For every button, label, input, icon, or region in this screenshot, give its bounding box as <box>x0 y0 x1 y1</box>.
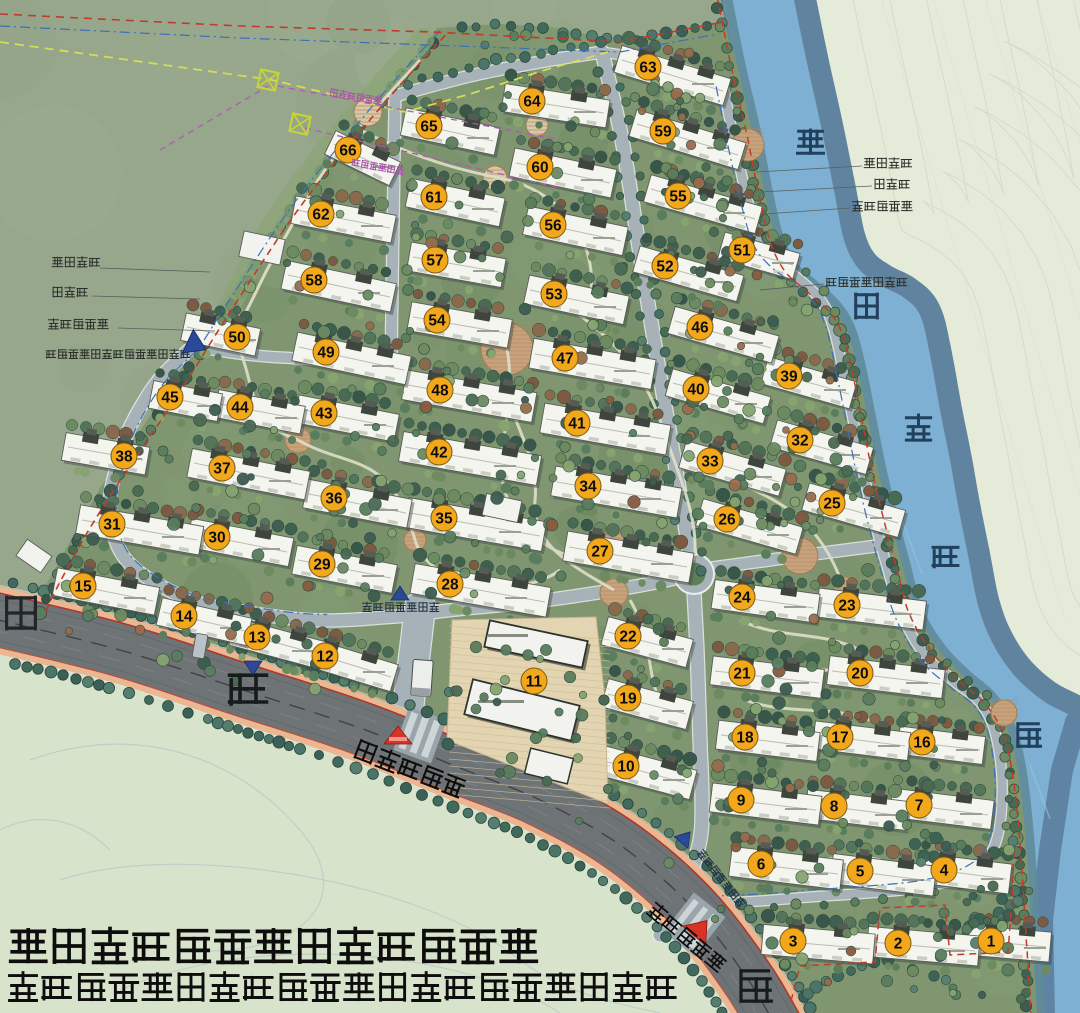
svg-text:19: 19 <box>619 691 637 708</box>
svg-text:21: 21 <box>733 666 751 683</box>
svg-text:38: 38 <box>115 449 133 466</box>
svg-text:34: 34 <box>579 479 597 496</box>
svg-text:63: 63 <box>639 60 657 77</box>
svg-text:2: 2 <box>894 936 903 953</box>
svg-text:48: 48 <box>431 383 449 400</box>
svg-text:40: 40 <box>687 382 704 399</box>
svg-text:16: 16 <box>913 735 931 752</box>
svg-text:64: 64 <box>523 94 541 111</box>
svg-text:29: 29 <box>313 557 331 574</box>
svg-text:42: 42 <box>430 445 447 462</box>
svg-text:17: 17 <box>831 730 848 747</box>
svg-text:7: 7 <box>915 798 924 815</box>
svg-text:43: 43 <box>315 406 333 423</box>
svg-text:59: 59 <box>654 124 672 141</box>
svg-text:56: 56 <box>544 218 562 235</box>
svg-text:6: 6 <box>757 857 766 874</box>
svg-text:18: 18 <box>736 730 754 747</box>
svg-text:28: 28 <box>441 577 459 594</box>
svg-text:24: 24 <box>733 590 751 607</box>
svg-text:47: 47 <box>556 351 573 368</box>
svg-text:61: 61 <box>425 190 443 207</box>
svg-text:50: 50 <box>228 330 245 347</box>
svg-text:1: 1 <box>987 934 996 951</box>
svg-text:44: 44 <box>231 400 249 417</box>
svg-text:62: 62 <box>312 207 329 224</box>
svg-text:20: 20 <box>851 666 868 683</box>
svg-text:36: 36 <box>325 491 343 508</box>
svg-text:14: 14 <box>175 609 193 626</box>
svg-text:12: 12 <box>316 649 333 666</box>
svg-text:41: 41 <box>568 416 586 433</box>
svg-text:22: 22 <box>619 629 636 646</box>
svg-text:65: 65 <box>420 119 438 136</box>
svg-text:57: 57 <box>426 253 443 270</box>
svg-text:9: 9 <box>737 793 746 810</box>
svg-text:8: 8 <box>830 799 839 816</box>
svg-text:33: 33 <box>701 454 719 471</box>
svg-text:25: 25 <box>823 496 841 513</box>
svg-text:39: 39 <box>780 369 798 386</box>
svg-text:52: 52 <box>656 259 673 276</box>
svg-text:46: 46 <box>691 320 709 337</box>
svg-text:51: 51 <box>733 243 751 260</box>
svg-text:4: 4 <box>940 863 949 880</box>
svg-text:26: 26 <box>718 512 736 529</box>
svg-text:5: 5 <box>856 864 865 881</box>
svg-text:23: 23 <box>838 598 856 615</box>
svg-text:55: 55 <box>669 189 687 206</box>
svg-text:54: 54 <box>428 313 446 330</box>
svg-text:37: 37 <box>213 461 230 478</box>
svg-text:53: 53 <box>545 287 563 304</box>
svg-text:66: 66 <box>339 143 357 160</box>
svg-text:32: 32 <box>791 433 808 450</box>
svg-text:31: 31 <box>103 517 121 534</box>
svg-text:13: 13 <box>248 630 266 647</box>
svg-text:60: 60 <box>531 160 548 177</box>
svg-text:45: 45 <box>161 390 179 407</box>
svg-text:15: 15 <box>74 579 92 596</box>
svg-text:49: 49 <box>317 345 335 362</box>
svg-text:10: 10 <box>617 759 634 776</box>
svg-text:58: 58 <box>305 273 323 290</box>
svg-text:27: 27 <box>591 544 608 561</box>
svg-text:3: 3 <box>789 934 798 951</box>
svg-text:35: 35 <box>435 511 453 528</box>
svg-text:30: 30 <box>208 530 225 547</box>
svg-text:11: 11 <box>526 674 543 691</box>
